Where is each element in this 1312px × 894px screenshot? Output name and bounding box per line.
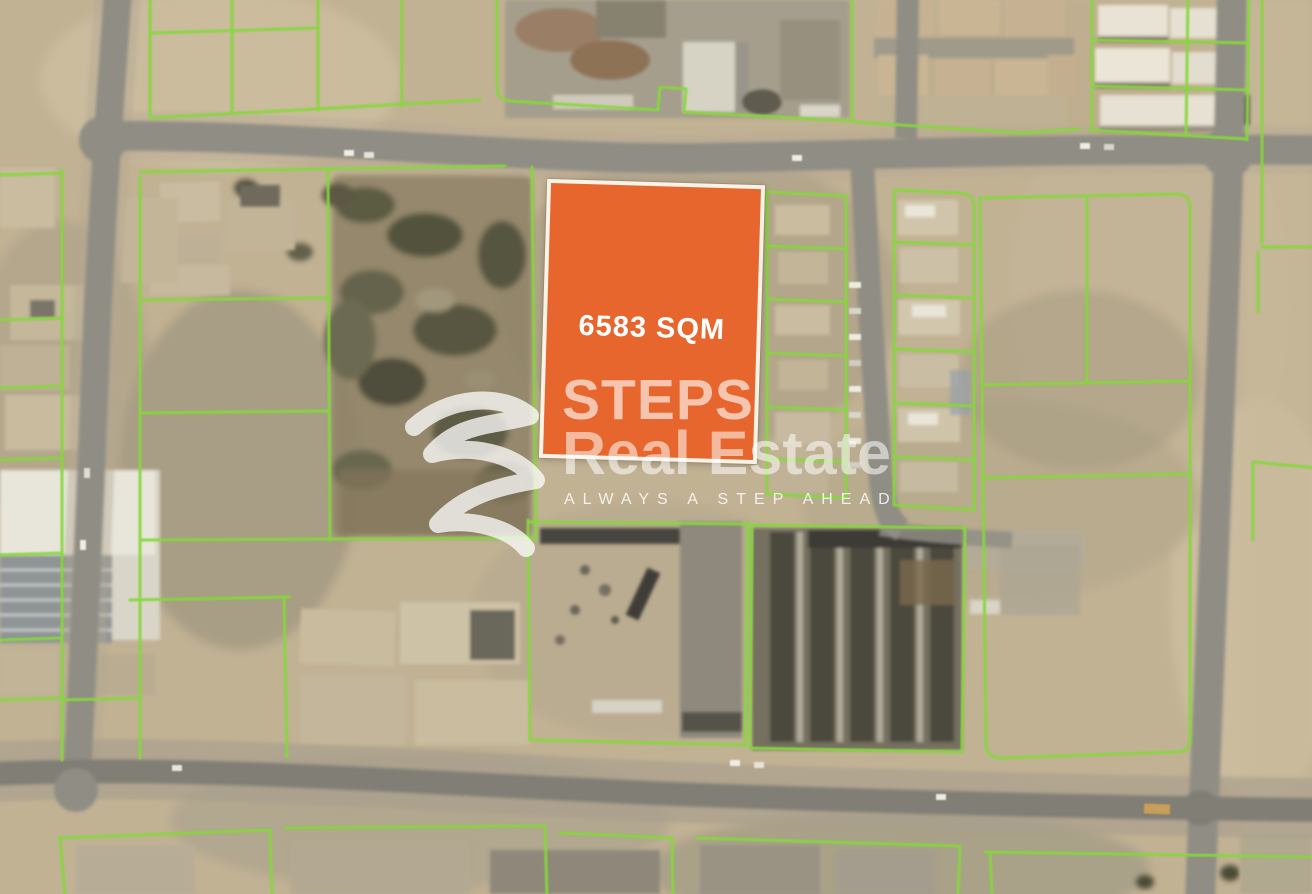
highlighted-plot: 6583 SQM — [539, 179, 765, 464]
plot-area-label: 6583 SQM — [546, 309, 757, 348]
listing-image: 6583 SQM STEPS Real Estate ALWAYS A STEP… — [0, 0, 1312, 894]
